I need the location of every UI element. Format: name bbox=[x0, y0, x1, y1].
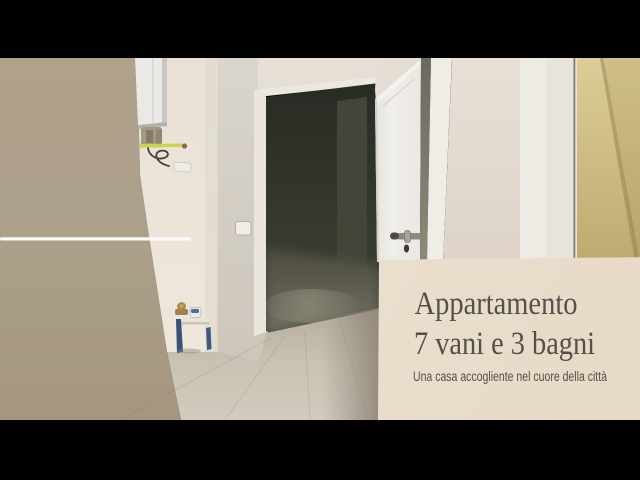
svg-text:Una casa accogliente nel cuore: Una casa accogliente nel cuore della cit… bbox=[413, 369, 607, 384]
svg-text:7 vani e 3 bagni: 7 vani e 3 bagni bbox=[414, 326, 595, 362]
svg-text:Appartamento: Appartamento bbox=[415, 286, 578, 322]
